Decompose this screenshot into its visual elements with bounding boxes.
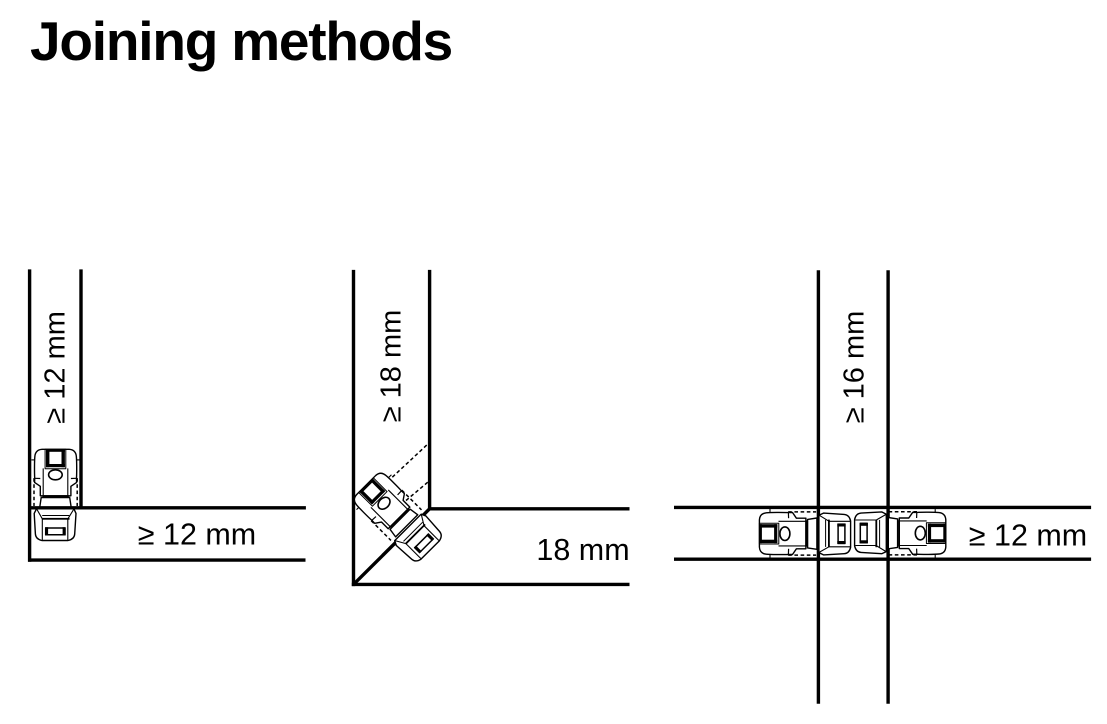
svg-text:≥ 12 mm: ≥ 12 mm bbox=[969, 518, 1087, 552]
svg-text:≥ 12 mm: ≥ 12 mm bbox=[138, 518, 256, 552]
svg-text:≥ 18 mm: ≥ 18 mm bbox=[376, 310, 408, 423]
svg-text:Joining methods: Joining methods bbox=[30, 10, 452, 72]
svg-text:18 mm: 18 mm bbox=[536, 533, 629, 567]
svg-text:≥ 12 mm: ≥ 12 mm bbox=[39, 311, 71, 424]
svg-text:≥ 16 mm: ≥ 16 mm bbox=[839, 311, 871, 424]
